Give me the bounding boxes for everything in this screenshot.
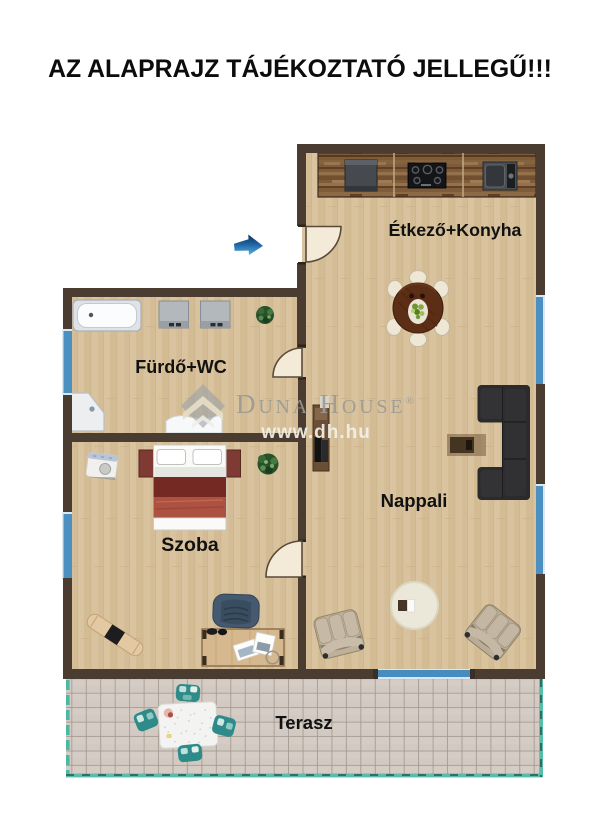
svg-text:Nappali: Nappali <box>381 490 448 511</box>
svg-text:Fürdő+WC: Fürdő+WC <box>135 357 227 377</box>
svg-text:www.dh.hu: www.dh.hu <box>260 422 371 443</box>
svg-text:AZ ALAPRAJZ TÁJÉKOZTATÓ JELLEG: AZ ALAPRAJZ TÁJÉKOZTATÓ JELLEGŰ!!! <box>48 55 552 83</box>
svg-text:Terasz: Terasz <box>275 712 332 733</box>
svg-text:Szoba: Szoba <box>161 534 219 556</box>
svg-text:Étkező+Konyha: Étkező+Konyha <box>389 219 522 240</box>
